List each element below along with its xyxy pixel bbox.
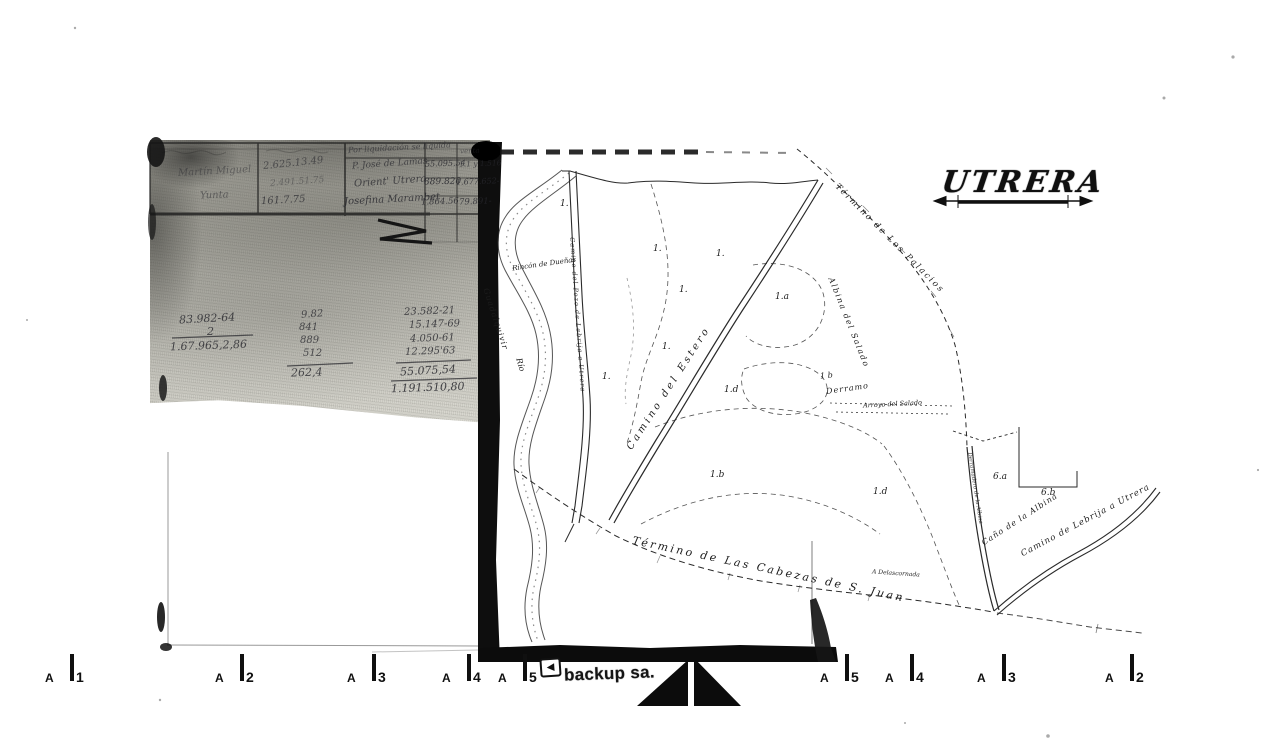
sum-c1-2: 2: [207, 325, 214, 338]
parcel-label: 1.: [602, 372, 611, 382]
ledger-value-6: 79.891-: [459, 196, 492, 207]
sum-c3-3: 4.050-61: [410, 332, 455, 345]
ruler-tick: [910, 654, 914, 681]
ledger-value-4: 1.1 y 1.516: [459, 158, 502, 168]
ruler-number: 4: [473, 669, 481, 685]
ruler-number: 3: [1008, 669, 1016, 685]
parcel-label: 1.: [716, 249, 725, 259]
sum-c1-total: 1.67.965,2,86: [170, 338, 247, 354]
ruler-letter: A: [977, 671, 986, 685]
parcel-label: 1.: [560, 199, 569, 209]
river-east-bank: [515, 176, 576, 640]
ruler-number: 2: [1136, 669, 1144, 685]
ruler-tick: [1002, 654, 1006, 681]
ruler-mark-left-1: A1: [70, 654, 110, 688]
parcel-label: 1.d: [724, 385, 738, 395]
camino-del-estero-road: [609, 180, 818, 520]
sum-c2-4: 512: [303, 348, 322, 359]
ruler-mark-right-2: A2: [1130, 654, 1170, 688]
ruler-mark-right-4: A4: [910, 654, 950, 688]
parcel-label: 1.: [653, 244, 662, 254]
ledger-header-note-2: venta: [460, 146, 480, 155]
sum-c2-total: 262,4: [291, 365, 323, 379]
backup-logo-icon: ◀: [539, 657, 561, 677]
ruler-number: 4: [916, 669, 924, 685]
label-derramo-num: 1 b: [820, 370, 834, 380]
sum-c2-2: 841: [299, 322, 318, 333]
sum-c3-4: 12.295'63: [405, 345, 456, 358]
parcel-label: 6.a: [993, 472, 1007, 482]
scan-specks: [26, 27, 1259, 738]
ruler-tick: [1130, 654, 1134, 681]
parcel-label: 6.b: [1041, 488, 1055, 498]
ruler-letter: A: [1105, 671, 1114, 685]
ruler-letter: A: [442, 671, 451, 685]
parcel-label: 1.a: [775, 292, 789, 302]
ledger-flourish: [378, 220, 432, 243]
ledger-name-2: Yunta: [200, 190, 229, 202]
parcel-label: 1.: [662, 342, 671, 352]
ruler-tick: [845, 654, 849, 681]
parcel-label: 1.b: [710, 470, 724, 480]
sum-c2-3: 889: [300, 335, 319, 346]
ruler-number: 1: [76, 669, 84, 685]
page-edges: [147, 137, 838, 662]
sum-c3-1: 23.582-21: [404, 305, 455, 318]
ruler-letter: A: [820, 671, 829, 685]
ruler-letter: A: [45, 671, 54, 685]
parcel-label: 1.: [679, 285, 688, 295]
ruler-mark-left-3: A3: [372, 654, 412, 688]
ruler-mark-left-2: A2: [240, 654, 280, 688]
ruler-number: 3: [378, 669, 386, 685]
map-linework: [0, 0, 1280, 742]
ruler-letter: A: [498, 671, 507, 685]
ruler-tick: [372, 654, 376, 681]
ruler-tick: [467, 654, 471, 681]
boundary-cabezas: [514, 469, 993, 612]
ruler-letter: A: [347, 671, 356, 685]
ruler-letter: A: [885, 671, 894, 685]
ledger-amount-3: 161.7.75: [261, 194, 306, 207]
ledger-value-5: 1.677.652-: [456, 176, 500, 187]
parcel-label: 1.d: [873, 487, 887, 497]
map-title: UTRERA: [940, 165, 1107, 200]
scanned-cadastral-map-sheet: { "title": { "text": "UTRERA" }, "logo":…: [0, 0, 1280, 742]
backup-logo-text: backup sa.: [564, 662, 656, 685]
ledger-value-3: 1.864.56: [421, 196, 459, 207]
ruler-number: 5: [851, 669, 859, 685]
ruler-tick: [523, 654, 527, 681]
parcel-6b-outline: [1019, 427, 1077, 487]
river-west-bank: [498, 170, 562, 642]
ruler-number: 5: [529, 669, 537, 685]
ruler-mark-right-3: A3: [1002, 654, 1042, 688]
sum-c3-total: 1.191.510,80: [391, 380, 465, 396]
ruler-number: 2: [246, 669, 254, 685]
sum-c3-2: 15.147-69: [409, 318, 460, 331]
sum-c2-1: 9.82: [301, 308, 324, 321]
ruler-letter: A: [215, 671, 224, 685]
ruler-tick: [240, 654, 244, 681]
ruler-mark-right-5: A5: [845, 654, 885, 688]
ruler-tick: [70, 654, 74, 681]
